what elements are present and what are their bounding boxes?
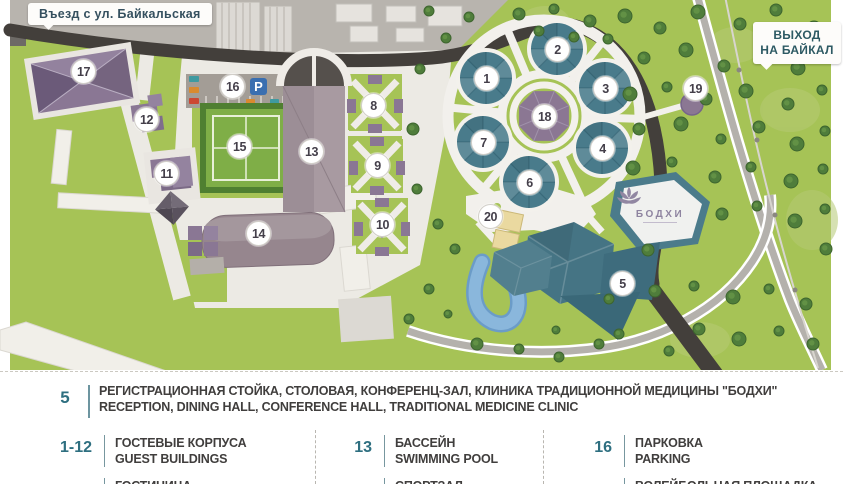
map-marker-6: 6 (517, 170, 542, 195)
map-marker-5: 5 (610, 271, 635, 296)
map-marker-19: 19 (683, 76, 708, 101)
map-marker-12: 12 (134, 107, 159, 132)
legend-main-ru: РЕГИСТРАЦИОННАЯ СТОЙКА, СТОЛОВАЯ, КОНФЕР… (99, 383, 829, 399)
map-marker-13: 13 (299, 139, 324, 164)
map-marker-1: 1 (474, 66, 499, 91)
exit-label: ВЫХОД НА БАЙКАЛ (753, 22, 841, 64)
map-marker-20: 20 (478, 204, 503, 229)
legend-item-guest-buildings: 1-12 ГОСТЕВЫЕ КОРПУСА GUEST BUILDINGS (48, 433, 308, 479)
legend-rule (88, 385, 90, 418)
lotus-icon (616, 186, 642, 206)
pool-building (280, 52, 348, 212)
map-marker-18: 18 (532, 104, 557, 129)
map-marker-15: 15 (227, 134, 252, 159)
entrance-label: Въезд с ул. Байкальская (28, 3, 212, 25)
legend-item-parking: 16 ПАРКОВКА PARKING (568, 433, 838, 479)
map-marker-4: 4 (590, 136, 615, 161)
brand-name: БОДХИ (636, 209, 684, 220)
map-marker-7: 7 (471, 130, 496, 155)
clinic-brand: БОДХИ (616, 186, 704, 244)
map-marker-10: 10 (370, 212, 395, 237)
map-marker-14: 14 (246, 221, 271, 246)
legend-main-en: RECEPTION, DINING HALL, CONFERENCE HALL,… (99, 399, 829, 415)
map-marker-8: 8 (361, 93, 386, 118)
legend-item-swimming-pool: 13 БАССЕЙН SWIMMING POOL (328, 433, 528, 479)
car-orange (189, 87, 199, 93)
legend-num-5: 5 (50, 388, 80, 408)
exit-label-line1: ВЫХОД (755, 28, 839, 43)
legend-item-cutoff-2: 14 СПОРТЗАЛ (328, 476, 528, 484)
map-marker-3: 3 (593, 76, 618, 101)
car-teal (189, 76, 199, 82)
site-map: P (0, 0, 843, 370)
legend-separator (0, 371, 843, 372)
legend-row-3-cutoff: 17 ГОСТИНИЦА 14 СПОРТЗАЛ 20 ВОЛЕЙБОЛЬНАЯ… (0, 476, 843, 484)
small-shed (189, 257, 224, 275)
parking-sign-icon: P (250, 78, 267, 95)
brand-rule (643, 222, 677, 223)
entrance-label-text: Въезд с ул. Байкальская (39, 7, 201, 21)
map-area: P (0, 0, 843, 370)
svg-text:P: P (254, 79, 263, 94)
resort-site-plan: P (0, 0, 843, 484)
legend-item-cutoff-1: 17 ГОСТИНИЦА (48, 476, 308, 484)
map-marker-11: 11 (154, 161, 179, 186)
exit-label-line2: НА БАЙКАЛ (755, 43, 839, 58)
map-marker-16: 16 (220, 74, 245, 99)
car-red (189, 98, 199, 104)
legend-row-2: 1-12 ГОСТЕВЫЕ КОРПУСА GUEST BUILDINGS 13… (0, 433, 843, 479)
map-marker-17: 17 (71, 59, 96, 84)
map-marker-9: 9 (365, 153, 390, 178)
legend-item-cutoff-3: 20 ВОЛЕЙБОЛЬНАЯ ПЛОЩАДКА (568, 476, 838, 484)
map-marker-2: 2 (545, 37, 570, 62)
